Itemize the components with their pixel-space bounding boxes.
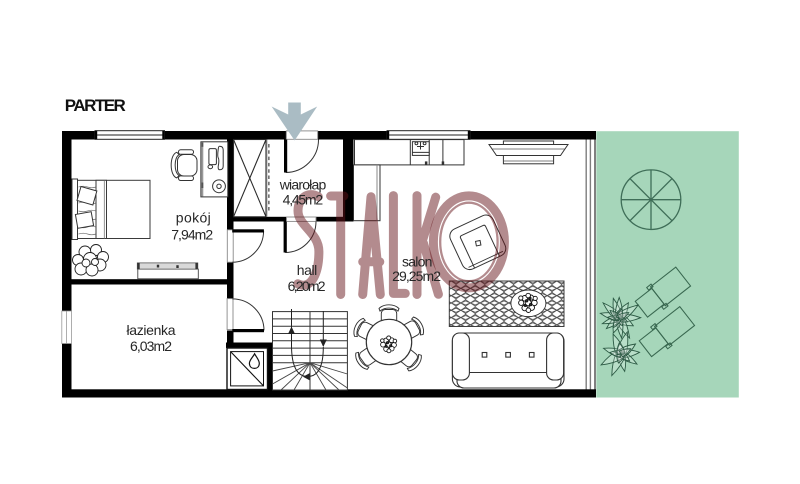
svg-text:6,03m2: 6,03m2 [130,338,172,354]
svg-text:łazienka: łazienka [127,322,176,338]
svg-text:7,94m2: 7,94m2 [171,227,213,243]
svg-text:6,20m2: 6,20m2 [288,278,326,294]
svg-text:4,45m2: 4,45m2 [283,192,324,208]
svg-text:wiarołap: wiarołap [279,177,327,193]
svg-text:pokój: pokój [176,210,211,226]
svg-text:PARTER: PARTER [65,96,126,115]
svg-text:29,25m2: 29,25m2 [392,268,441,284]
svg-text:hall: hall [297,262,318,278]
